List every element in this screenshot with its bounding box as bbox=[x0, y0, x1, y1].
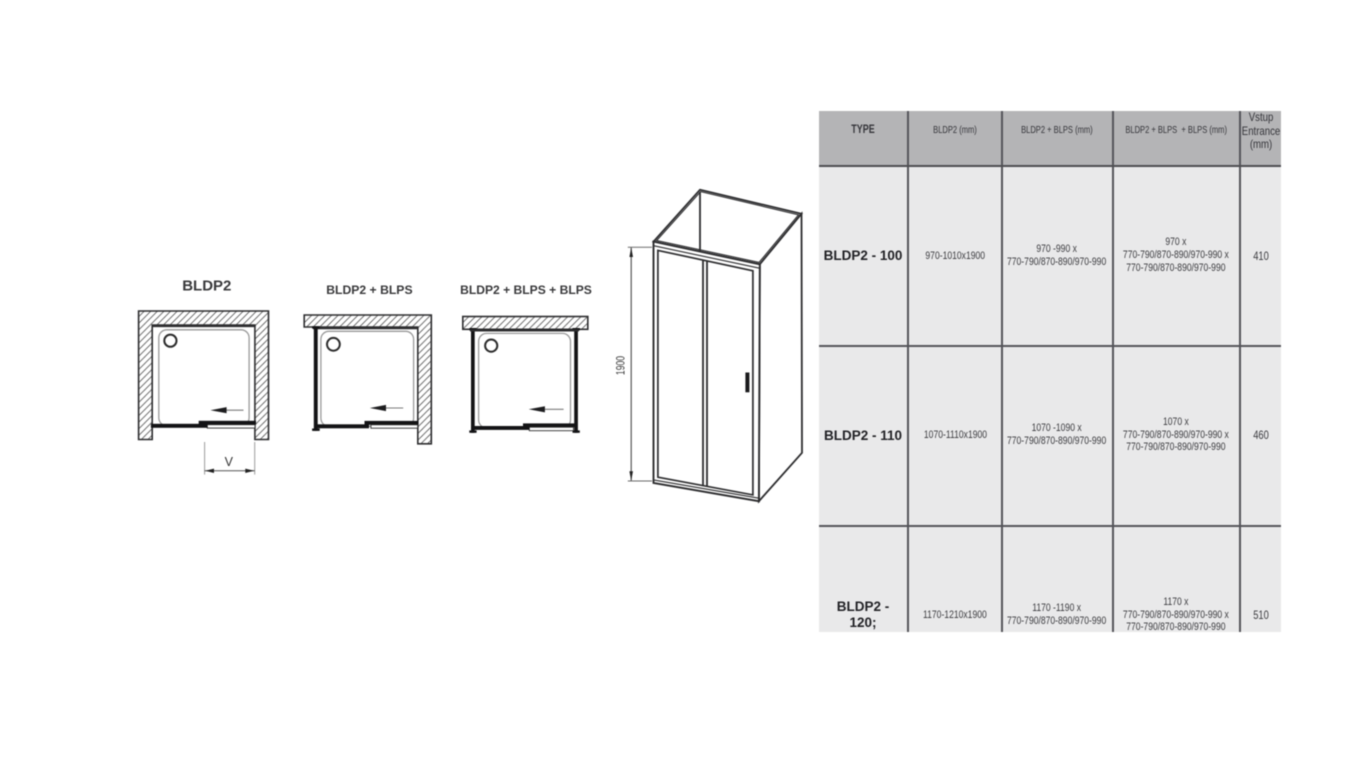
svg-text:BLDP2 + BLPS: BLDP2 + BLPS bbox=[326, 283, 412, 297]
svg-text:1900: 1900 bbox=[615, 356, 627, 375]
svg-text:BLDP2: BLDP2 bbox=[182, 278, 231, 295]
svg-text:BLDP2 + BLPS + BLPS: BLDP2 + BLPS + BLPS bbox=[460, 283, 592, 297]
svg-text:V: V bbox=[225, 455, 234, 469]
